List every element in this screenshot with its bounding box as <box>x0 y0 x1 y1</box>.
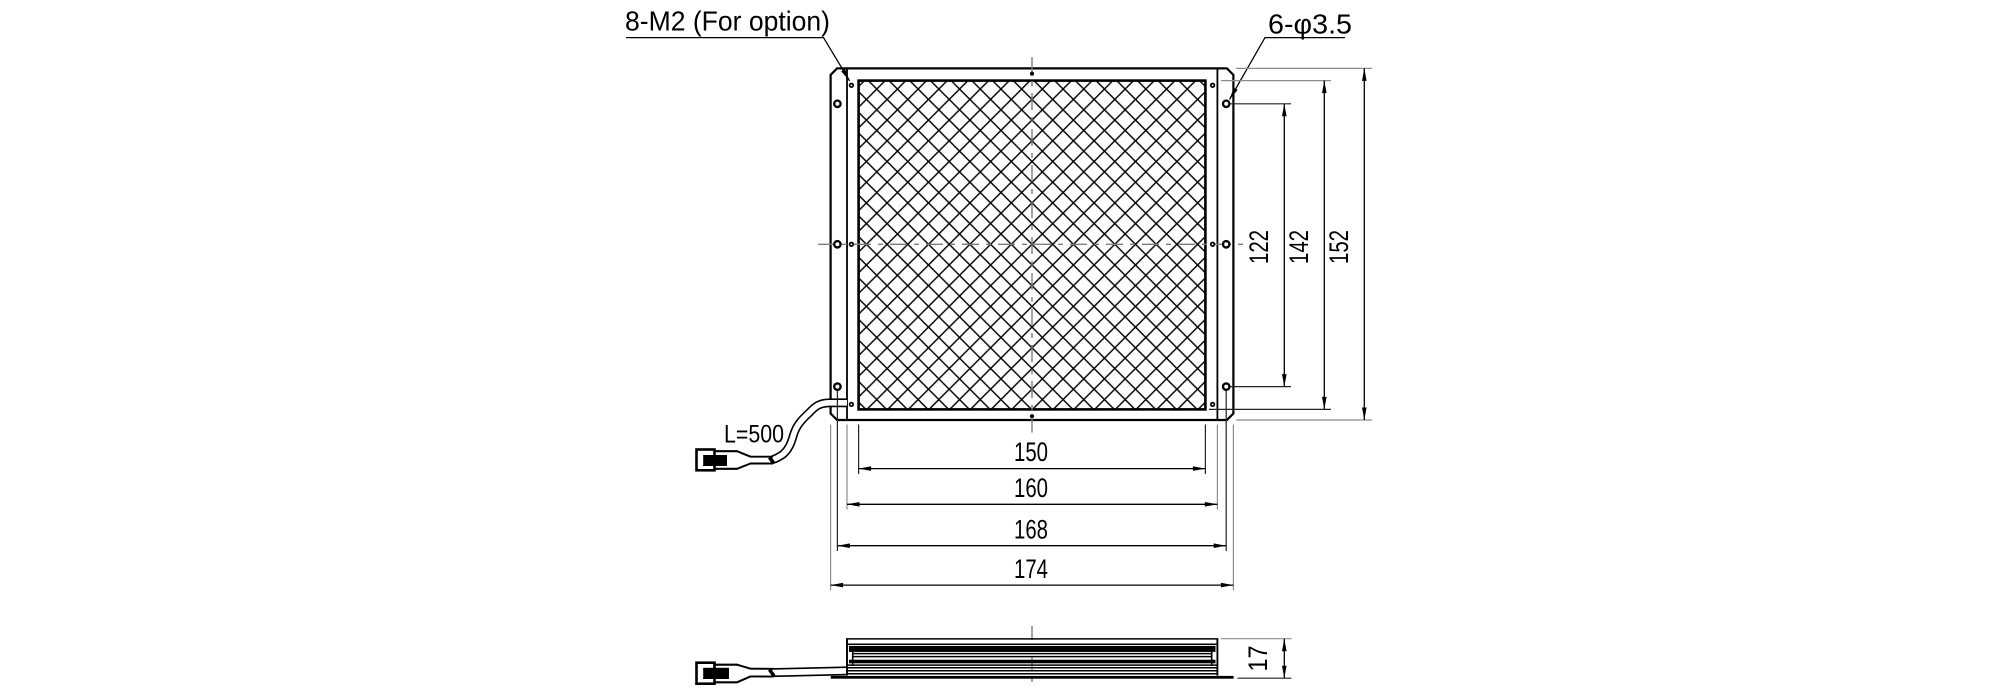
svg-text:17: 17 <box>1243 646 1273 672</box>
svg-text:168: 168 <box>1014 515 1048 545</box>
svg-text:152: 152 <box>1324 230 1354 264</box>
svg-text:122: 122 <box>1244 230 1274 264</box>
svg-text:6-φ3.5: 6-φ3.5 <box>1268 9 1352 40</box>
svg-text:174: 174 <box>1014 554 1048 584</box>
svg-text:8-M2 (For option): 8-M2 (For option) <box>625 6 830 37</box>
svg-text:150: 150 <box>1014 437 1048 467</box>
svg-text:160: 160 <box>1014 473 1048 503</box>
svg-text:L=500: L=500 <box>724 421 784 449</box>
svg-text:142: 142 <box>1284 230 1314 264</box>
